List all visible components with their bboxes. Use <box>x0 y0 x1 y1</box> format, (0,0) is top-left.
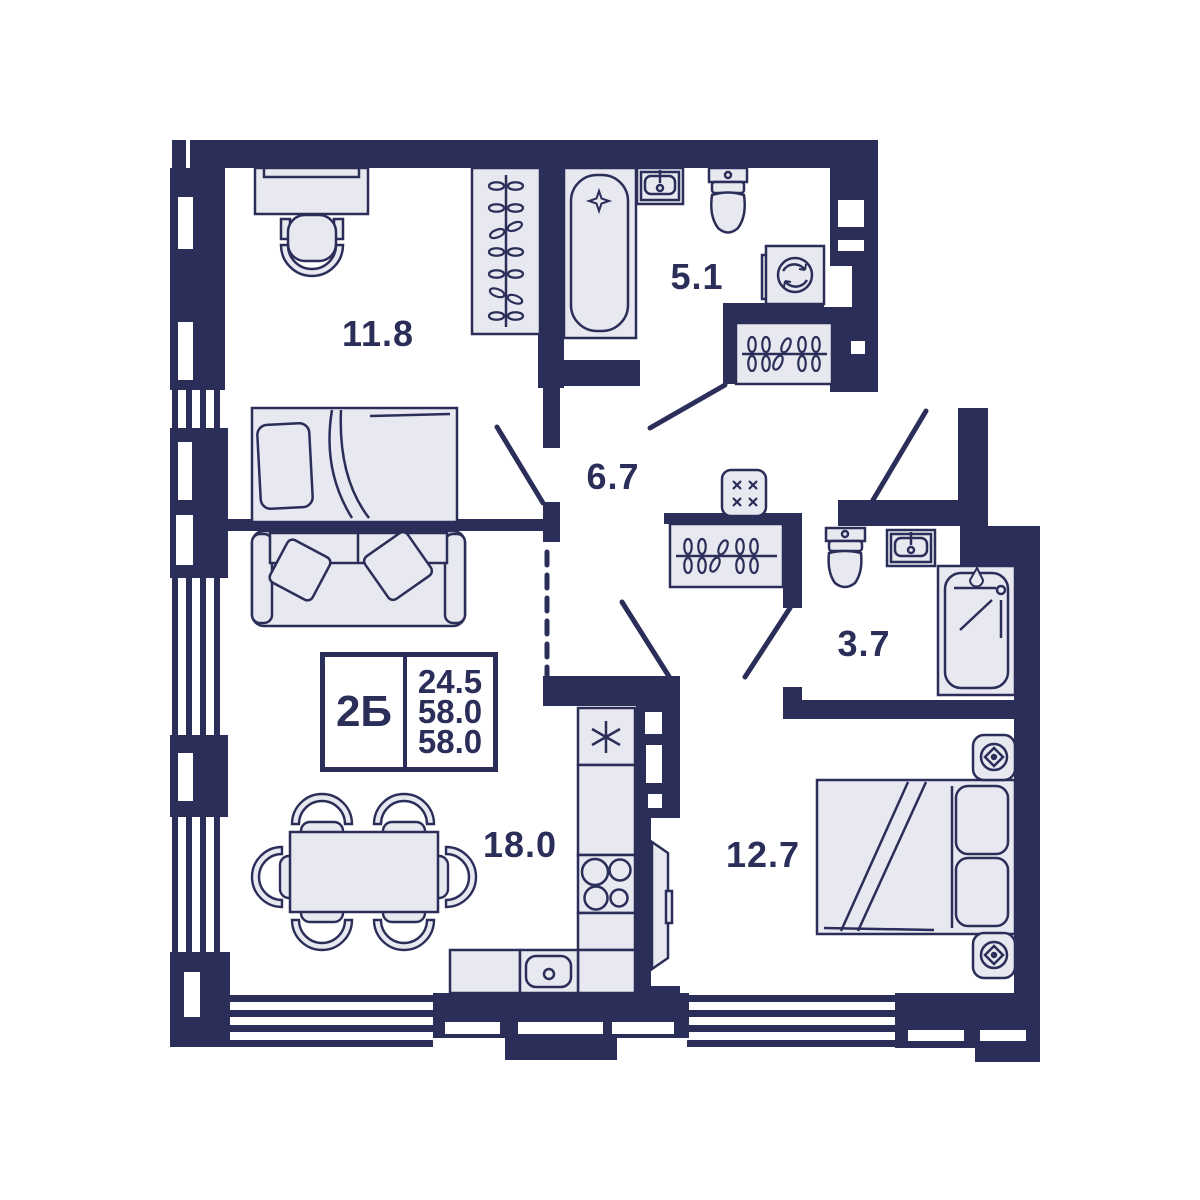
bed-single-icon <box>252 408 457 522</box>
door-bedroom-upper <box>497 427 543 503</box>
sofa-icon <box>252 530 465 626</box>
room-area-label-living-kitchen: 18.0 <box>483 824 557 866</box>
unit-area-full: 58.0 <box>418 727 482 757</box>
door-bathroom-main <box>650 385 725 428</box>
room-area-label-bedroom-lower: 12.7 <box>726 834 800 876</box>
desk <box>255 168 368 214</box>
floor-plan-canvas <box>0 0 1200 1200</box>
tv-panel-icon <box>652 842 672 969</box>
door-bathroom-guest <box>745 608 790 677</box>
kitchen-sink-icon <box>526 956 571 987</box>
floor-plan: 11.8 5.1 6.7 3.7 18.0 12.7 2Б 24.5 58.0 … <box>0 0 1200 1200</box>
bed-double-icon <box>817 780 1015 934</box>
unit-area-values: 24.5 58.0 58.0 <box>407 657 493 767</box>
door-entry <box>873 411 926 500</box>
room-area-label-bedroom-upper: 11.8 <box>342 313 414 355</box>
sink-guest-icon <box>887 530 935 566</box>
room-area-label-hallway: 6.7 <box>586 456 639 498</box>
shower-cabin-icon <box>938 566 1015 695</box>
unit-type-label: 2Б <box>325 657 407 767</box>
room-area-label-bathroom-guest: 3.7 <box>837 623 890 665</box>
hall-closet-hangers-icon <box>670 524 783 587</box>
dining-table-icon <box>252 794 476 950</box>
office-chair-icon <box>281 215 343 276</box>
closet-hangers-icon <box>736 323 832 384</box>
nightstand-lamp-icon <box>973 933 1015 978</box>
door-bedroom-lower <box>622 602 670 678</box>
wardrobe-hangers-icon <box>472 168 540 334</box>
toilet-guest-icon <box>826 528 865 587</box>
washing-machine-icon <box>762 246 824 304</box>
electrical-panel-icon <box>722 470 766 516</box>
toilet-icon <box>709 168 747 233</box>
room-area-label-bathroom-main: 5.1 <box>670 256 723 298</box>
bathtub-icon <box>564 168 636 338</box>
nightstand-lamp-icon <box>973 735 1015 780</box>
sink-icon <box>637 168 683 204</box>
unit-info-box: 2Б 24.5 58.0 58.0 <box>320 652 498 772</box>
